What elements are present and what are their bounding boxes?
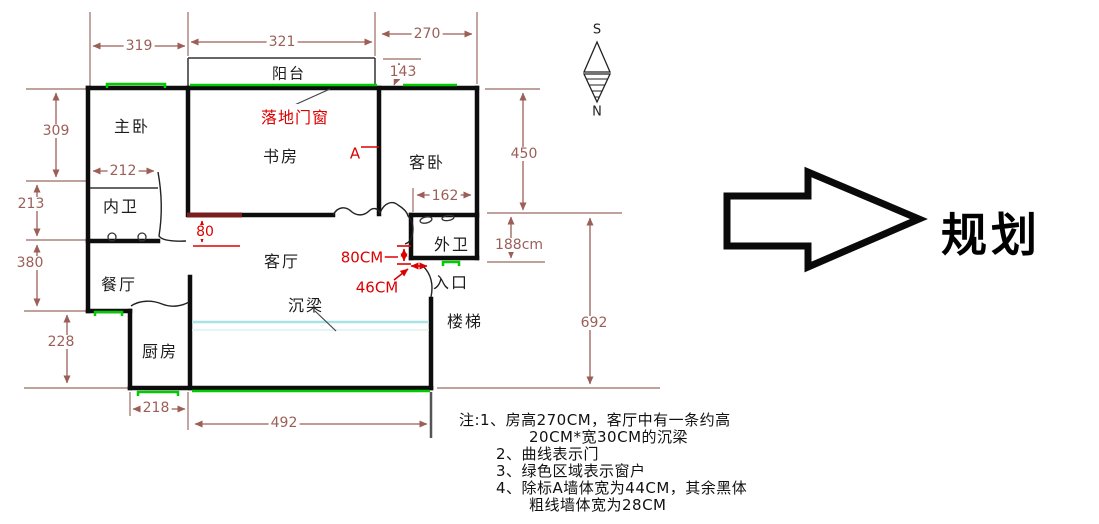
planning-title: 规划 xyxy=(941,212,1041,258)
room-label-innerbath: 内卫 xyxy=(103,193,139,217)
door-innerbath xyxy=(158,172,186,241)
note-line-3: 2、曲线表示门 xyxy=(496,447,599,462)
dim-label-228: 228 xyxy=(46,335,77,349)
label-80cm: 80CM xyxy=(340,251,385,266)
dim-label-321: 321 xyxy=(267,35,298,49)
extension-lines xyxy=(24,12,660,430)
dim-label-492: 492 xyxy=(269,416,300,430)
room-label-stairs: 楼梯 xyxy=(447,308,483,332)
dim-label-218: 218 xyxy=(141,401,172,415)
room-label-study: 书房 xyxy=(263,143,299,167)
note-line-5: 4、除标A墙体宽为44CM，其余黑体 xyxy=(496,481,747,496)
dim-label-450: 450 xyxy=(509,147,540,161)
door-kitchen xyxy=(131,301,189,306)
dim-label-188cm: 188cm xyxy=(493,238,545,252)
compass-south-label: S xyxy=(593,23,601,38)
big-arrow-icon xyxy=(727,172,919,267)
note-line-4: 3、绿色区域表示窗户 xyxy=(496,464,646,479)
note-line-6: 粗线墙体宽为28CM xyxy=(529,498,667,513)
opening-wavy xyxy=(333,203,413,244)
dim-label-380: 380 xyxy=(15,256,46,270)
label-80: 80 xyxy=(195,225,215,239)
dim-label-270: 270 xyxy=(412,27,443,41)
room-label-living: 客厅 xyxy=(264,248,300,272)
label-wall-a: A xyxy=(349,147,361,162)
room-label-entrance: 入口 xyxy=(433,269,469,293)
door-entrance xyxy=(423,266,432,297)
floorplan-canvas: 阳台 主卧 书房 客卧 内卫 外卫 餐厅 客厅 厨房 入口 楼梯 沉梁 319 … xyxy=(0,0,1099,524)
compass-north-label: N xyxy=(592,105,602,120)
compass-upper-triangle xyxy=(584,42,610,72)
room-label-balcony: 阳台 xyxy=(272,63,306,84)
note-line-1: 注:1、房高270CM，客厅中有一条约高 xyxy=(459,413,731,428)
dim-label-212: 212 xyxy=(108,164,139,178)
label-46cm: 46CM xyxy=(355,281,400,296)
room-label-guest: 客卧 xyxy=(409,149,445,173)
room-label-dining: 餐厅 xyxy=(101,271,137,295)
window-outerbath xyxy=(443,262,459,266)
room-label-master: 主卧 xyxy=(114,113,150,137)
room-label-kitchen: 厨房 xyxy=(142,338,178,362)
dim-label-213: 213 xyxy=(16,197,47,211)
dim-label-319: 319 xyxy=(124,39,155,53)
room-label-outerbath: 外卫 xyxy=(434,231,470,255)
window-dining xyxy=(95,312,122,316)
dim-label-309: 309 xyxy=(41,124,72,138)
dimension-lines xyxy=(37,34,590,424)
compass-lower-triangle xyxy=(584,74,610,102)
note-line-2: 20CM*宽30CM的沉梁 xyxy=(529,430,688,445)
dim-label-162: 162 xyxy=(430,189,461,203)
compass-icon xyxy=(584,42,610,102)
window-kitchen xyxy=(138,392,178,396)
label-beam: 沉梁 xyxy=(288,292,324,316)
dim-label-143: 143 xyxy=(388,65,419,79)
label-floor-door-window: 落地门窗 xyxy=(261,104,329,128)
dim-label-692: 692 xyxy=(579,316,610,330)
